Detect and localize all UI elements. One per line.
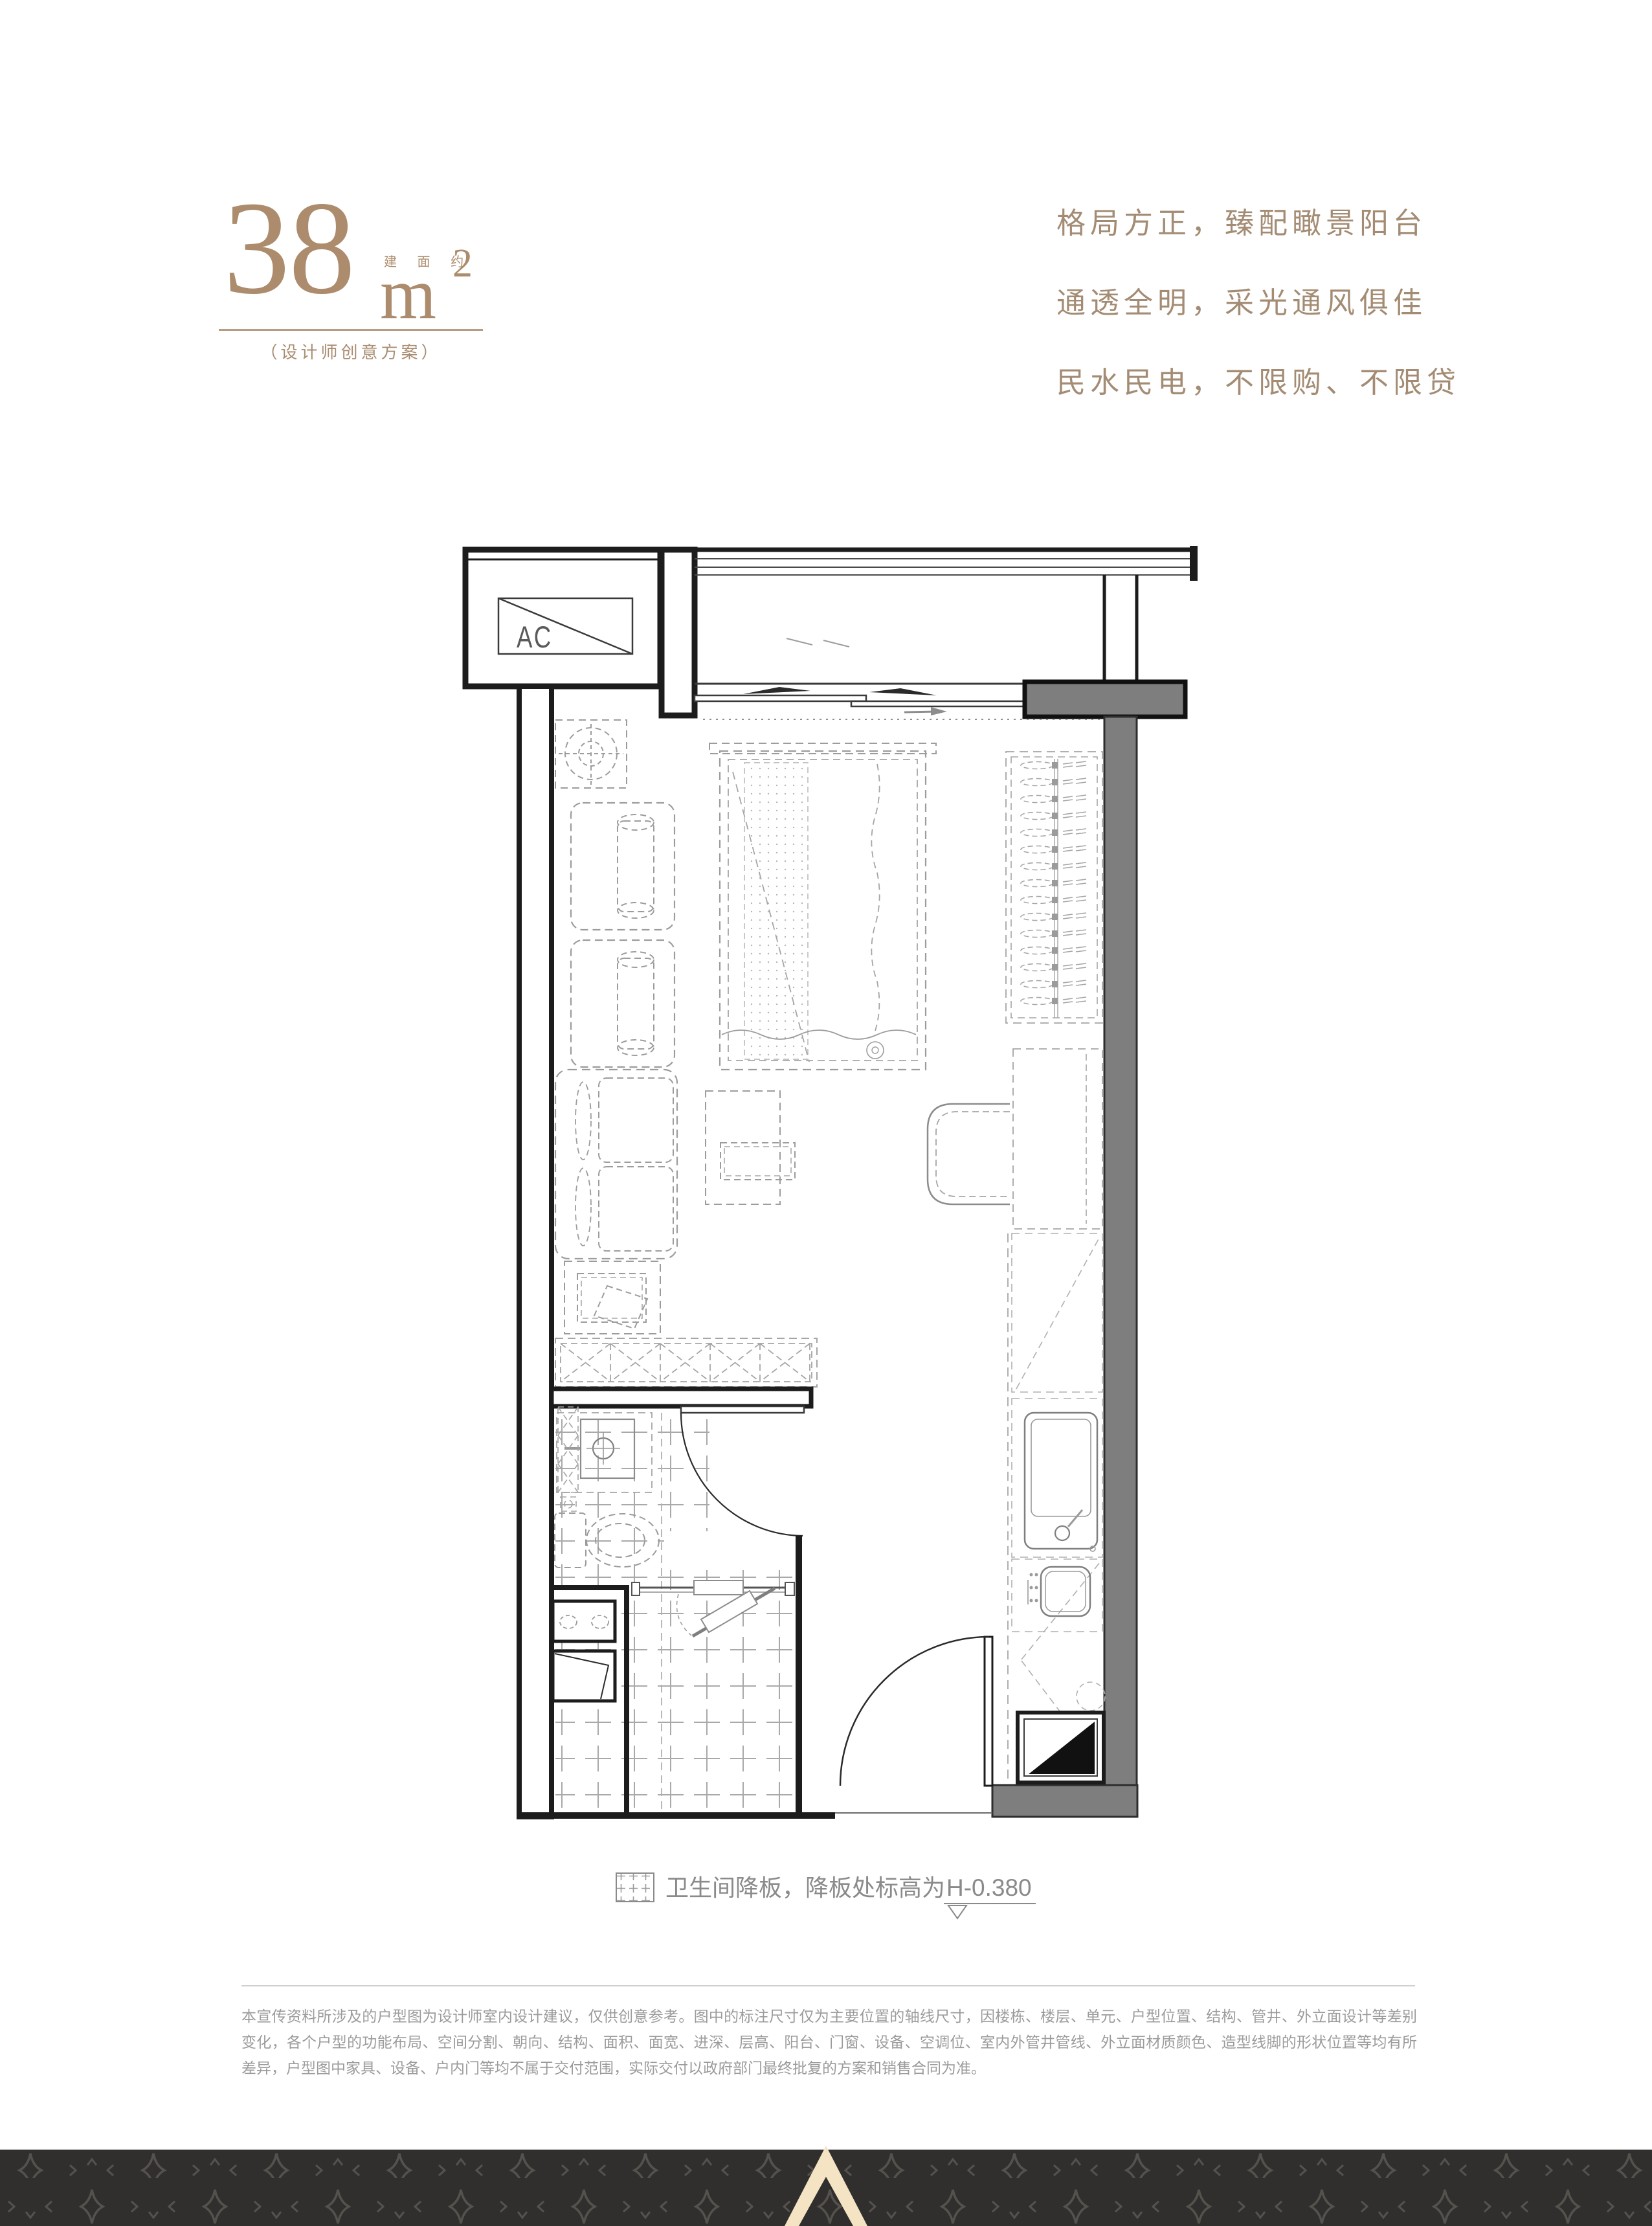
selling-point-1: 格局方正，臻配瞰景阳台 [1056,183,1510,263]
elevation-triangle-icon [948,1906,966,1918]
flyer-page: 38 建 面 约 m 2 （设计师创意方案） 格局方正，臻配瞰景阳台 通透全明，… [0,0,1652,2226]
duvet-fold [871,764,879,1031]
wall-notch [662,550,695,715]
shear-wall-tee [992,682,1185,1817]
wardrobe [1006,752,1102,1023]
legend-swatch [616,1873,654,1902]
desk-chair [928,1104,1010,1204]
legend-label: 卫生间降板，降板处标高为 [665,1874,945,1901]
area-value: 38 [223,181,354,315]
disclaimer-text: 本宣传资料所涉及的户型图为设计师室内设计建议，仅供创意参考。图中的标注尺寸仅为主… [241,2003,1417,2081]
area-headline: 38 建 面 约 m 2 （设计师创意方案） [216,181,494,369]
ac-label: AC [517,620,553,654]
shaft-box [1018,1713,1104,1782]
legend-value: H-0.380 [946,1874,1032,1901]
selling-points: 格局方正，臻配瞰景阳台 通透全明，采光通风俱佳 民水民电，不限购、不限贷 [1056,183,1510,422]
disclaimer-rule [241,1985,1415,1986]
area-unit: m [380,258,436,330]
legend: 卫生间降板，降板处标高为 H-0.380 [616,1873,1036,1918]
window-end-post [1190,546,1198,581]
cooktop [1028,1567,1090,1616]
footer-band [0,2141,1652,2226]
area-unit-exponent: 2 [452,243,473,284]
bed [709,743,936,1070]
bathroom-door-leaf [681,1406,804,1413]
left-exterior-wall [519,686,552,1817]
balcony-window [662,546,1198,682]
washer-box [553,1601,615,1641]
selling-point-3: 民水民电，不限购、不限贷 [1056,343,1510,422]
bathroom-top-wall [552,1389,811,1406]
lounge-chair-2 [571,940,675,1067]
desk [1013,1049,1102,1229]
lounge-chair-1 [571,803,675,930]
bathroom [552,1389,811,1814]
coffee-table [706,1091,795,1204]
balcony-sliding-door [695,638,1025,715]
headline-subtitle: （设计师创意方案） [219,339,483,363]
ac-platform: AC [465,550,660,686]
side-table [564,1261,660,1334]
entry-door [840,1637,992,1786]
selling-point-2: 通透全明，采光通风俱佳 [1056,263,1510,343]
plant [555,720,627,788]
bottom-wall [519,1813,992,1816]
bed-runner [744,763,808,1059]
tv-console [555,1338,817,1387]
kitchen-sink [1025,1413,1097,1551]
sofa [555,1070,677,1259]
floorplan-drawing: AC [447,537,1214,1923]
headline-divider [219,329,483,331]
